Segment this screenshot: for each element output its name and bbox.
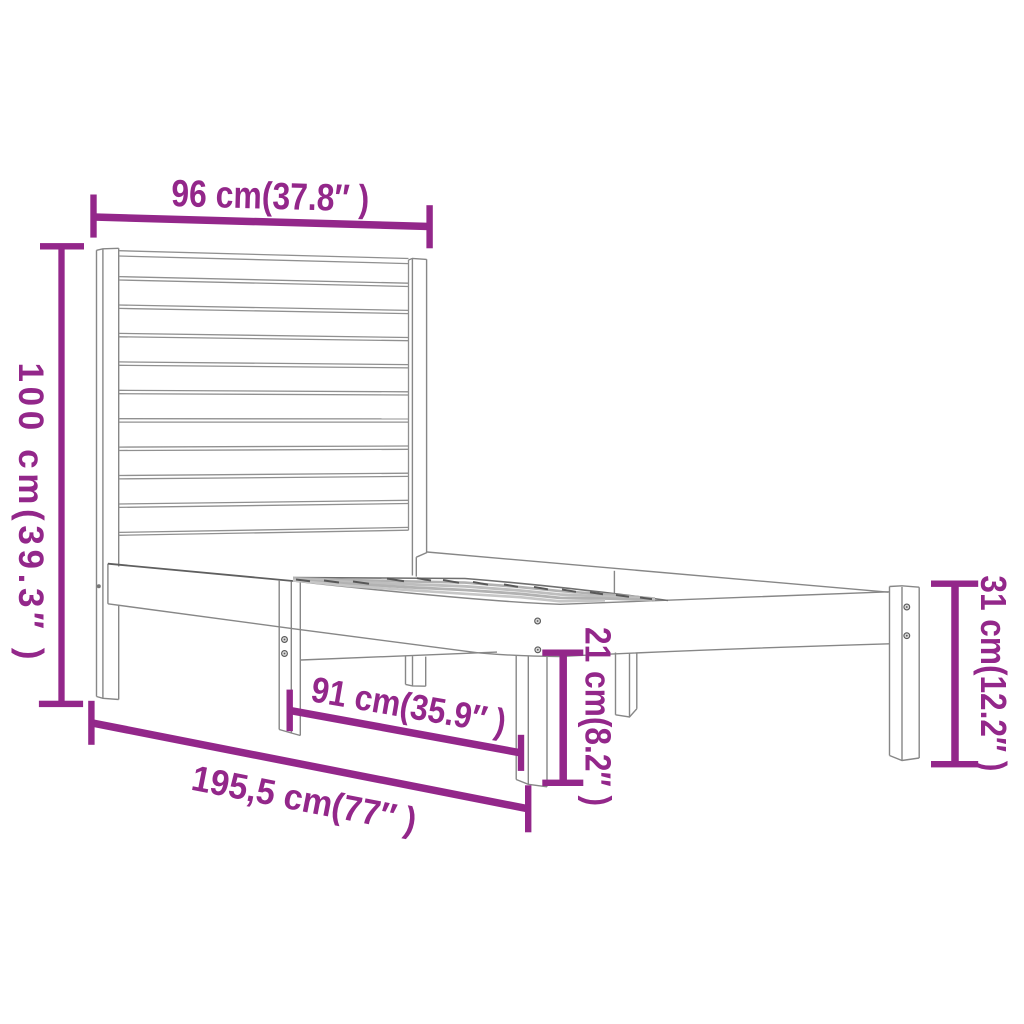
svg-text:31 cm(12.2″ ): 31 cm(12.2″ ) <box>973 575 1014 771</box>
svg-text:195,5 cm(77″ ): 195,5 cm(77″ ) <box>188 757 420 841</box>
svg-text:100 cm(39.3″ ): 100 cm(39.3″ ) <box>11 363 50 660</box>
svg-text:96 cm(37.8″ ): 96 cm(37.8″ ) <box>171 173 370 221</box>
svg-text:21 cm(8.2″ ): 21 cm(8.2″ ) <box>578 627 619 806</box>
